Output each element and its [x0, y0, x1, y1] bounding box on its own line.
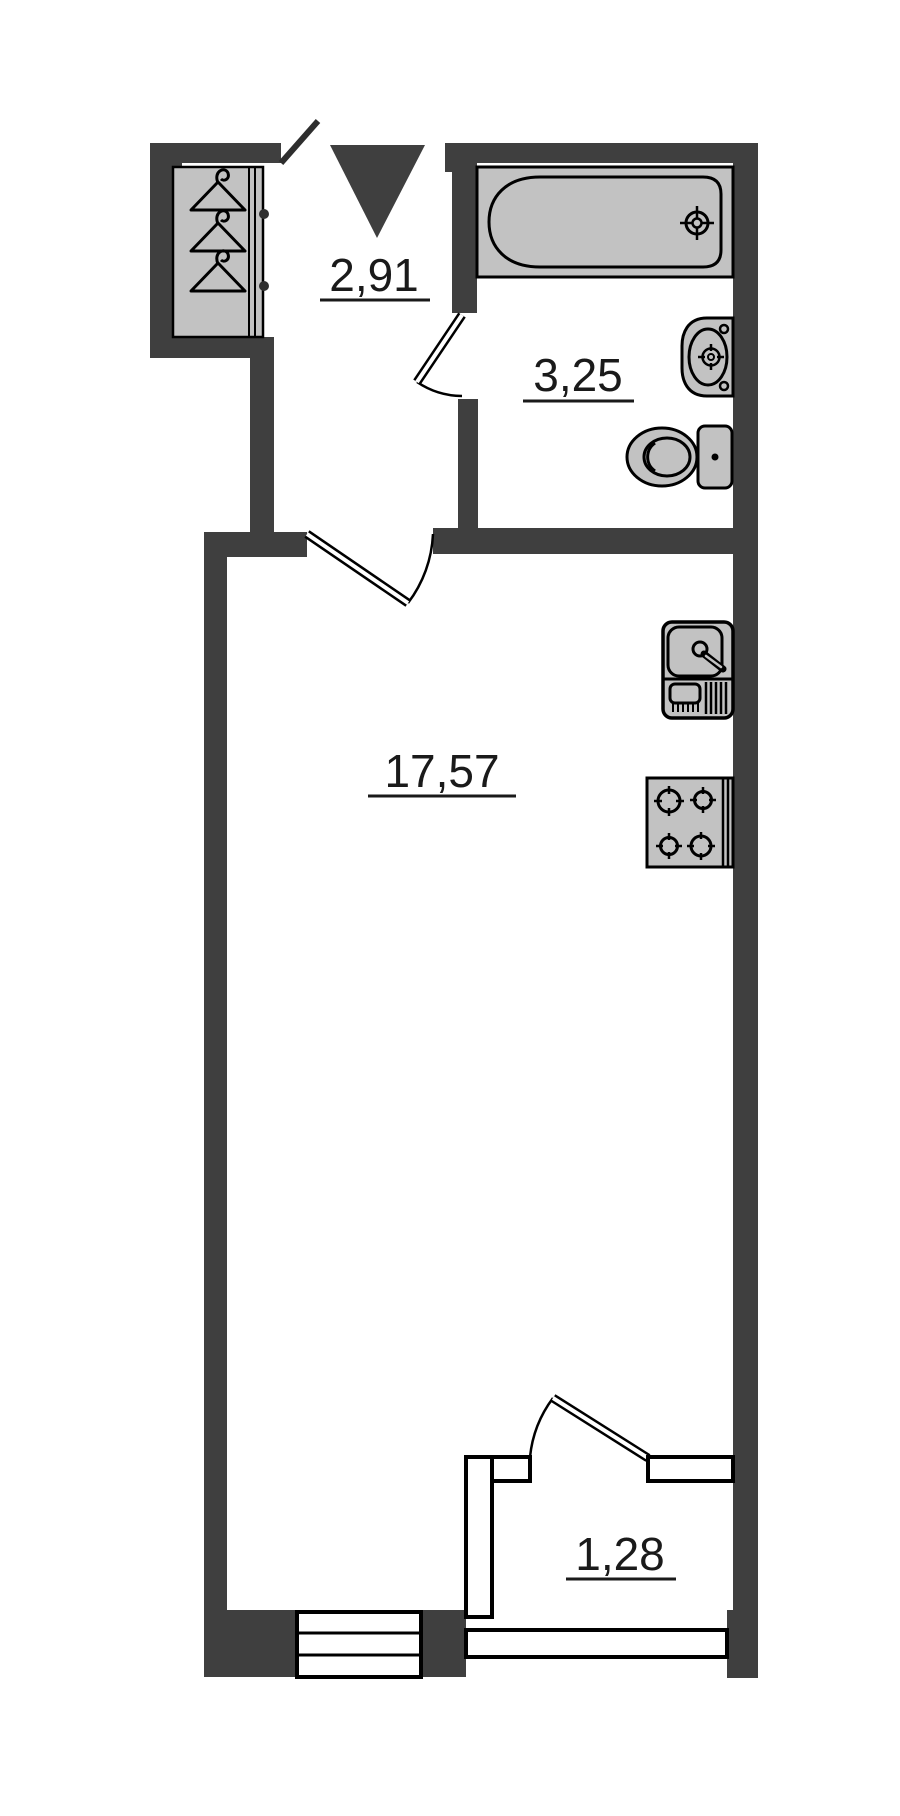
wall-segment: [250, 337, 274, 532]
wall-segment: [421, 1610, 466, 1677]
door-swing-arc: [408, 534, 433, 603]
wall-segment: [204, 532, 227, 1677]
room-label-balcony: 1,28: [575, 1528, 665, 1580]
wall-segment: [458, 399, 478, 529]
toilet-bowl: [627, 428, 697, 486]
balcony-wall-bottom: [466, 1630, 727, 1657]
wardrobe-icon: [173, 167, 269, 337]
window-frame: [297, 1612, 421, 1677]
floor-plan-page: 2,91 3,25 17,57 1,28: [0, 0, 900, 1816]
wall-segment: [150, 337, 263, 358]
wash-basin-icon: [682, 318, 733, 396]
wall-segment: [727, 1610, 758, 1678]
door-leaf-inner: [553, 1398, 648, 1458]
balcony-wall-left: [466, 1457, 492, 1617]
balcony-sill: [648, 1457, 733, 1481]
bathroom-door: [417, 315, 462, 396]
entrance: [281, 121, 425, 238]
bathtub-icon: [477, 167, 733, 277]
window: [297, 1612, 421, 1677]
entrance-arrow: [330, 145, 425, 238]
door-leaf-inner: [307, 534, 408, 603]
entrance-door-leaf: [281, 121, 318, 163]
walls: [150, 143, 758, 1678]
room-label-hallway: 2,91: [329, 249, 419, 301]
wall-segment: [733, 143, 758, 1678]
wall-segment: [204, 1610, 297, 1677]
wall-segment: [445, 143, 758, 163]
stove-icon: [647, 778, 733, 867]
toilet-tank-button: [712, 454, 719, 461]
kitchen-sink-icon: [663, 622, 733, 718]
floor-plan: 2,91 3,25 17,57 1,28: [0, 0, 900, 1816]
stove-body: [647, 778, 733, 867]
wall-segment: [452, 163, 477, 313]
room-labels: 2,91 3,25 17,57 1,28: [320, 249, 676, 1580]
room-label-living-room: 17,57: [384, 745, 499, 797]
toilet-icon: [627, 426, 732, 488]
living-room-door: [307, 534, 433, 603]
door-leaf-inner: [417, 315, 462, 382]
wardrobe-knob: [259, 281, 269, 291]
balcony-door: [530, 1398, 648, 1458]
door-swing-arc: [530, 1398, 553, 1457]
wardrobe-knob: [259, 209, 269, 219]
wall-segment: [433, 528, 758, 554]
room-label-bathroom: 3,25: [533, 349, 623, 401]
wall-segment: [204, 532, 307, 557]
door-swing-arc: [417, 382, 462, 396]
